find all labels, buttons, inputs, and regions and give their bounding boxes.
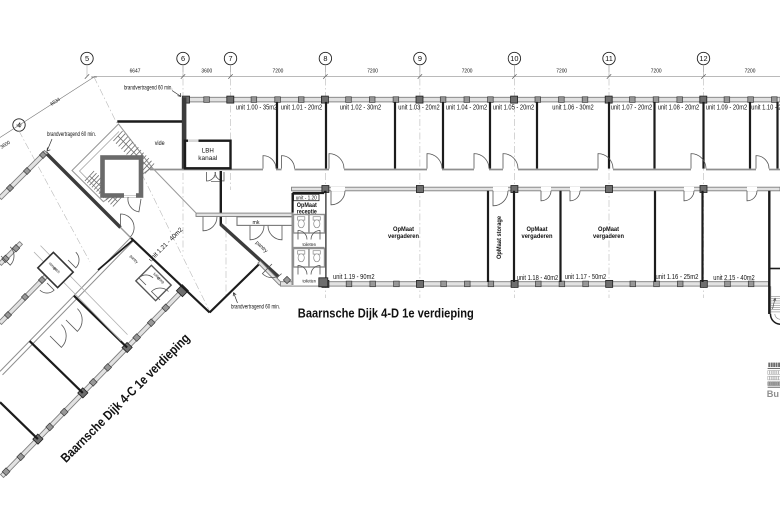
svg-text:vide: vide	[155, 141, 166, 147]
svg-text:8: 8	[323, 54, 327, 63]
svg-text:7200: 7200	[556, 69, 567, 75]
svg-text:unit 1.02 - 30m2: unit 1.02 - 30m2	[340, 105, 382, 112]
svg-text:7200: 7200	[367, 69, 378, 75]
svg-text:OpMaat storage: OpMaat storage	[496, 216, 503, 259]
svg-text:unit 1.06 - 30m2: unit 1.06 - 30m2	[552, 105, 594, 112]
svg-text:unit 1.18 - 40m2: unit 1.18 - 40m2	[517, 275, 559, 282]
svg-text:10: 10	[510, 54, 518, 63]
svg-text:vergaderen: vergaderen	[522, 233, 553, 240]
svg-text:unit - 1.20: unit - 1.20	[296, 196, 318, 202]
svg-text:vergaderen: vergaderen	[593, 233, 624, 240]
svg-text:unit 2.15 - 40m2: unit 2.15 - 40m2	[713, 275, 755, 282]
svg-text:unit 1.04 - 20m2: unit 1.04 - 20m2	[446, 105, 488, 112]
svg-text:7200: 7200	[651, 69, 662, 75]
svg-text:Bu: Bu	[767, 389, 779, 399]
svg-text:brandvertragend 60 min.: brandvertragend 60 min.	[47, 132, 96, 138]
svg-text:3600: 3600	[201, 69, 212, 75]
svg-text:5: 5	[85, 54, 89, 63]
svg-text:OpMaat: OpMaat	[393, 226, 415, 233]
svg-text:unit 1.08 - 20m2: unit 1.08 - 20m2	[658, 105, 700, 112]
svg-text:OpMaat: OpMaat	[598, 226, 620, 233]
svg-text:unit 1.10 - 20m2: unit 1.10 - 20m2	[751, 105, 780, 112]
svg-text:7200: 7200	[745, 69, 756, 75]
svg-text:unit 1.05 - 20m2: unit 1.05 - 20m2	[493, 105, 535, 112]
svg-text:unit 1.03 - 20m2: unit 1.03 - 20m2	[398, 105, 440, 112]
svg-text:unit 1.00 - 35m2: unit 1.00 - 35m2	[236, 105, 278, 112]
svg-text:mk: mk	[253, 220, 261, 226]
svg-text:kanaal: kanaal	[198, 155, 218, 162]
svg-text:6: 6	[181, 54, 185, 63]
svg-text:unit 1.09 - 20m2: unit 1.09 - 20m2	[706, 105, 748, 112]
svg-text:12: 12	[699, 54, 707, 63]
svg-text:7: 7	[228, 54, 232, 63]
svg-text:unit 1.07 - 20m2: unit 1.07 - 20m2	[611, 105, 653, 112]
svg-text:Baarnsche Dijk 4-D 1e verdiepi: Baarnsche Dijk 4-D 1e verdieping	[298, 306, 474, 321]
svg-text:unit 1.01 - 20m2: unit 1.01 - 20m2	[281, 105, 323, 112]
svg-text:7200: 7200	[462, 69, 473, 75]
svg-text:brandvertragend 60 min.: brandvertragend 60 min.	[231, 305, 280, 311]
svg-text:7200: 7200	[273, 69, 284, 75]
svg-text:brandvertragend 60 min.: brandvertragend 60 min.	[124, 85, 173, 91]
svg-text:unit 1.19 - 90m2: unit 1.19 - 90m2	[333, 274, 375, 281]
svg-text:unit 1.17 - 50m2: unit 1.17 - 50m2	[565, 274, 607, 281]
svg-text:LBH: LBH	[202, 147, 214, 154]
svg-text:11: 11	[605, 54, 613, 63]
svg-text:unit 1.16 - 25m2: unit 1.16 - 25m2	[656, 274, 699, 281]
svg-text:OpMaat: OpMaat	[527, 226, 549, 233]
svg-text:6647: 6647	[130, 69, 141, 75]
svg-text:9: 9	[418, 54, 422, 63]
svg-text:vergaderen: vergaderen	[388, 233, 419, 240]
svg-text:toiletten: toiletten	[302, 278, 316, 284]
